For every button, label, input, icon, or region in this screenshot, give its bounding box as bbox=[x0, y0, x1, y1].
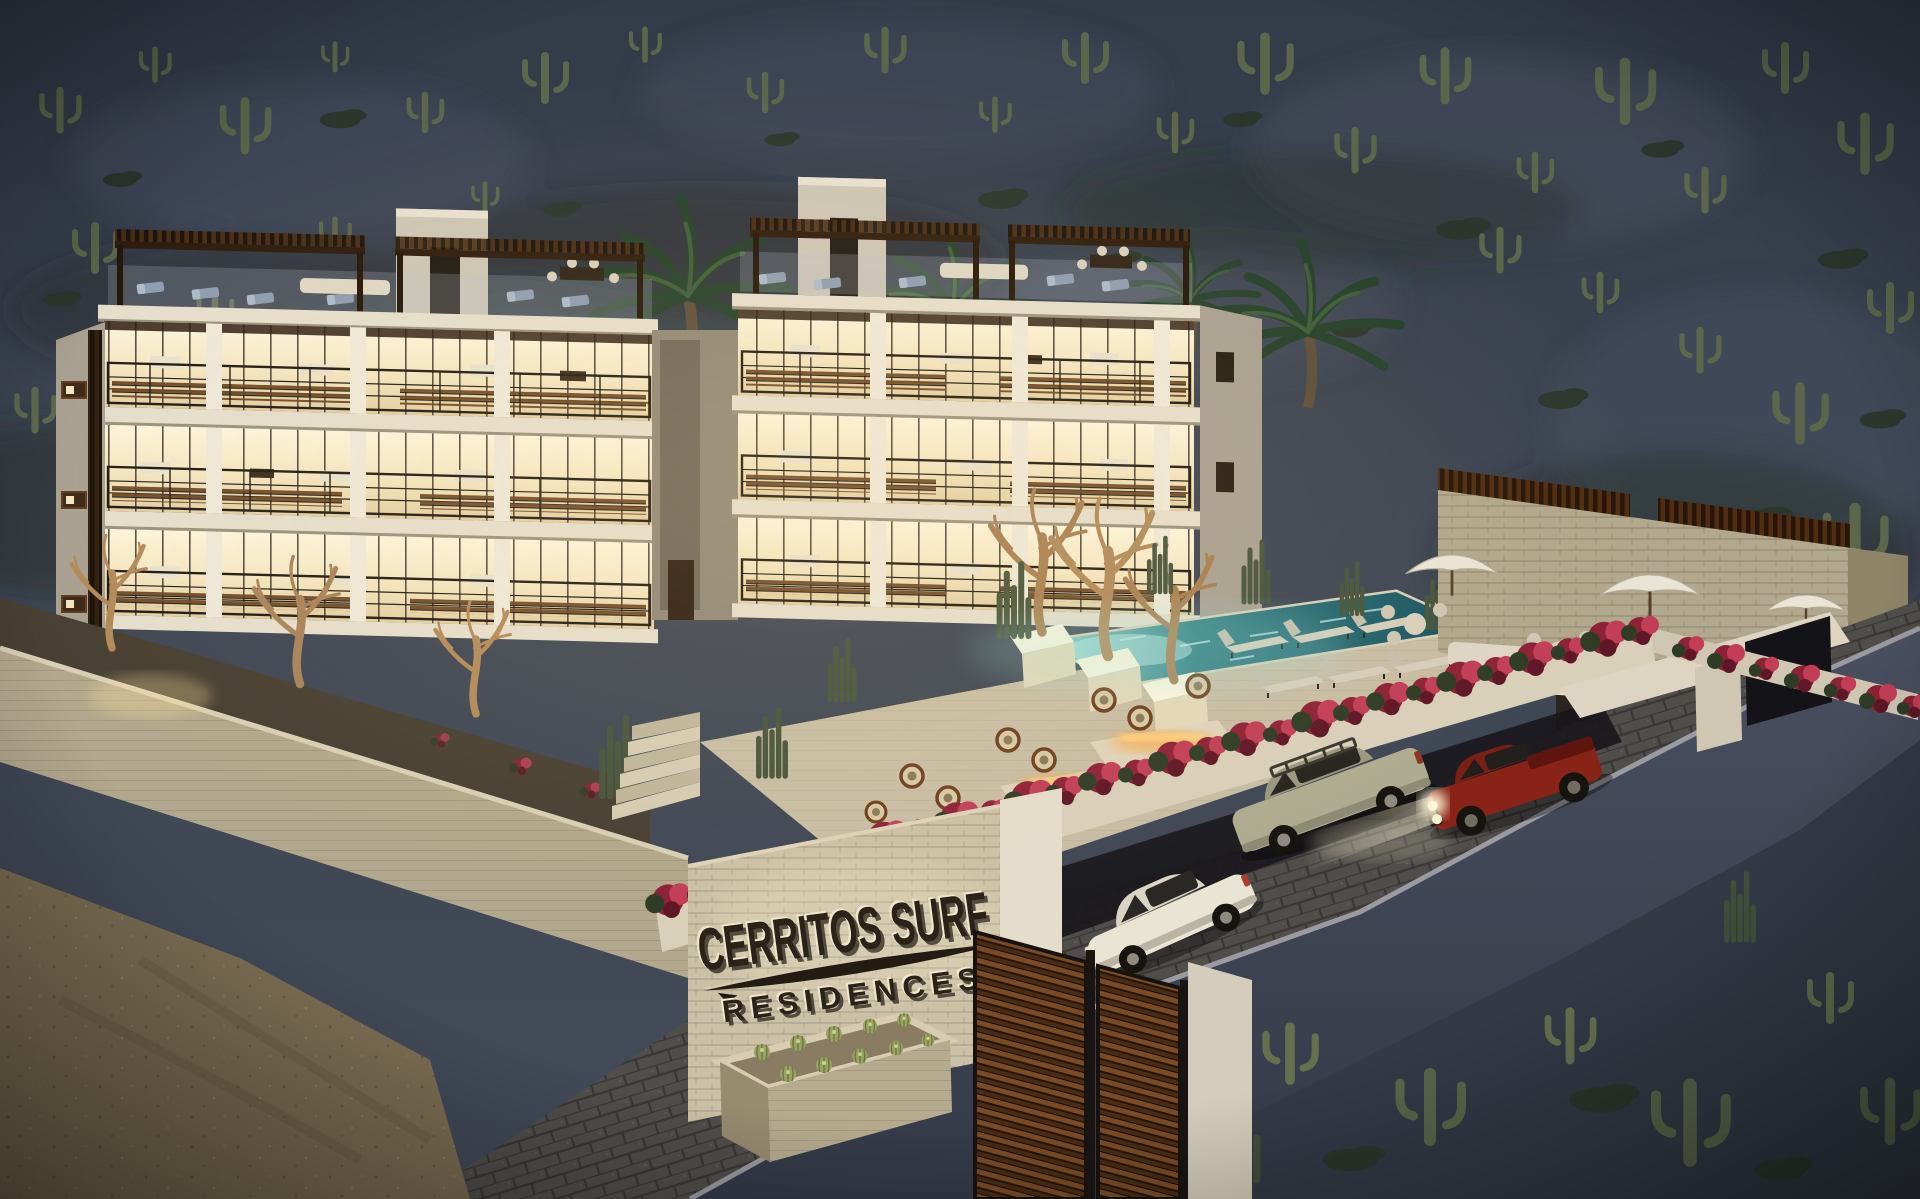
architectural-rendering: CERRITOS SURF CERRITOS SURF CERRITOS SUR… bbox=[0, 0, 1920, 1199]
scene-canvas: CERRITOS SURF CERRITOS SURF CERRITOS SUR… bbox=[0, 0, 1920, 1199]
vignette bbox=[0, 0, 1920, 1199]
light-overlays bbox=[0, 0, 1920, 1199]
